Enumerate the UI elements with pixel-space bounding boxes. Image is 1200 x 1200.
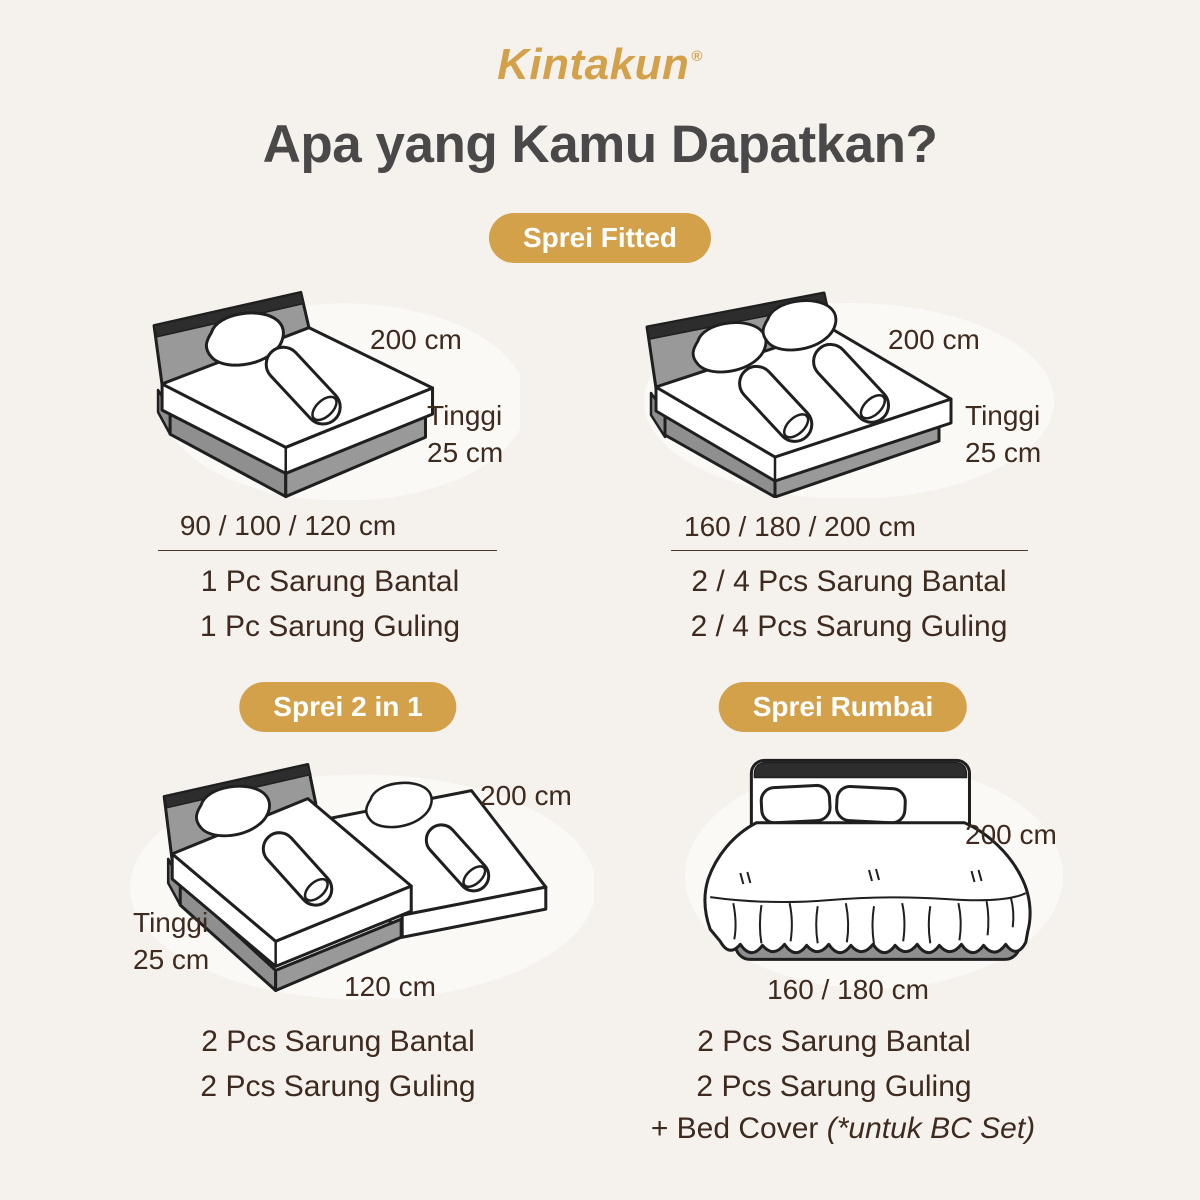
registered-trademark-icon: ® (691, 48, 703, 65)
pillow-left (761, 785, 831, 824)
badge-sprei-fitted: Sprei Fitted (489, 213, 711, 263)
height-label-line1: Tinggi (965, 397, 1041, 434)
sizes-label-rumbai: 160 / 180 cm (767, 974, 929, 1006)
length-label-rumbai: 200 cm (965, 819, 1057, 851)
length-label-fitted-single: 200 cm (370, 324, 462, 356)
item-rumbai-guling: 2 Pcs Sarung Guling (696, 1070, 971, 1104)
brand-logo-text: Kintakun (497, 40, 689, 89)
item-fitted-single-guling: 1 Pc Sarung Guling (200, 610, 460, 644)
badge-sprei-2in1: Sprei 2 in 1 (239, 682, 456, 732)
item-rumbai-bantal: 2 Pcs Sarung Bantal (697, 1025, 971, 1059)
sizes-label-fitted-double: 160 / 180 / 200 cm (684, 511, 916, 543)
sizes-label-fitted-single: 90 / 100 / 120 cm (180, 510, 396, 542)
height-label-line1: Tinggi (427, 397, 503, 434)
height-label-line1: Tinggi (133, 904, 209, 941)
bedcover-text: + Bed Cover (651, 1112, 827, 1145)
height-label-line2: 25 cm (427, 434, 503, 471)
item-2in1-guling: 2 Pcs Sarung Guling (200, 1070, 475, 1104)
bed-illustration-rumbai (678, 750, 1070, 1002)
height-label-2in1: Tinggi 25 cm (133, 904, 209, 978)
length-label-fitted-double: 200 cm (888, 324, 980, 356)
divider-fitted-single (158, 550, 497, 551)
badge-sprei-rumbai: Sprei Rumbai (719, 682, 967, 732)
infographic-canvas: Kintakun® Apa yang Kamu Dapatkan? Sprei … (0, 0, 1200, 1200)
width-label-2in1: 120 cm (344, 971, 436, 1003)
height-label-line2: 25 cm (965, 434, 1041, 471)
bedcover-note: (*untuk BC Set) (827, 1112, 1035, 1145)
item-2in1-bantal: 2 Pcs Sarung Bantal (201, 1025, 475, 1059)
page-title: Apa yang Kamu Dapatkan? (263, 114, 938, 175)
pillow-right (836, 786, 906, 824)
brand-logo: Kintakun® (497, 40, 703, 90)
height-label-line2: 25 cm (133, 941, 209, 978)
divider-fitted-double (671, 550, 1028, 551)
length-label-2in1: 200 cm (480, 780, 572, 812)
item-fitted-single-bantal: 1 Pc Sarung Bantal (201, 565, 460, 599)
item-rumbai-bedcover: + Bed Cover (*untuk BC Set) (651, 1112, 1035, 1146)
height-label-fitted-single: Tinggi 25 cm (427, 397, 503, 471)
height-label-fitted-double: Tinggi 25 cm (965, 397, 1041, 471)
headboard-edge (754, 762, 966, 777)
item-fitted-double-guling: 2 / 4 Pcs Sarung Guling (691, 610, 1008, 644)
item-fitted-double-bantal: 2 / 4 Pcs Sarung Bantal (691, 565, 1006, 599)
